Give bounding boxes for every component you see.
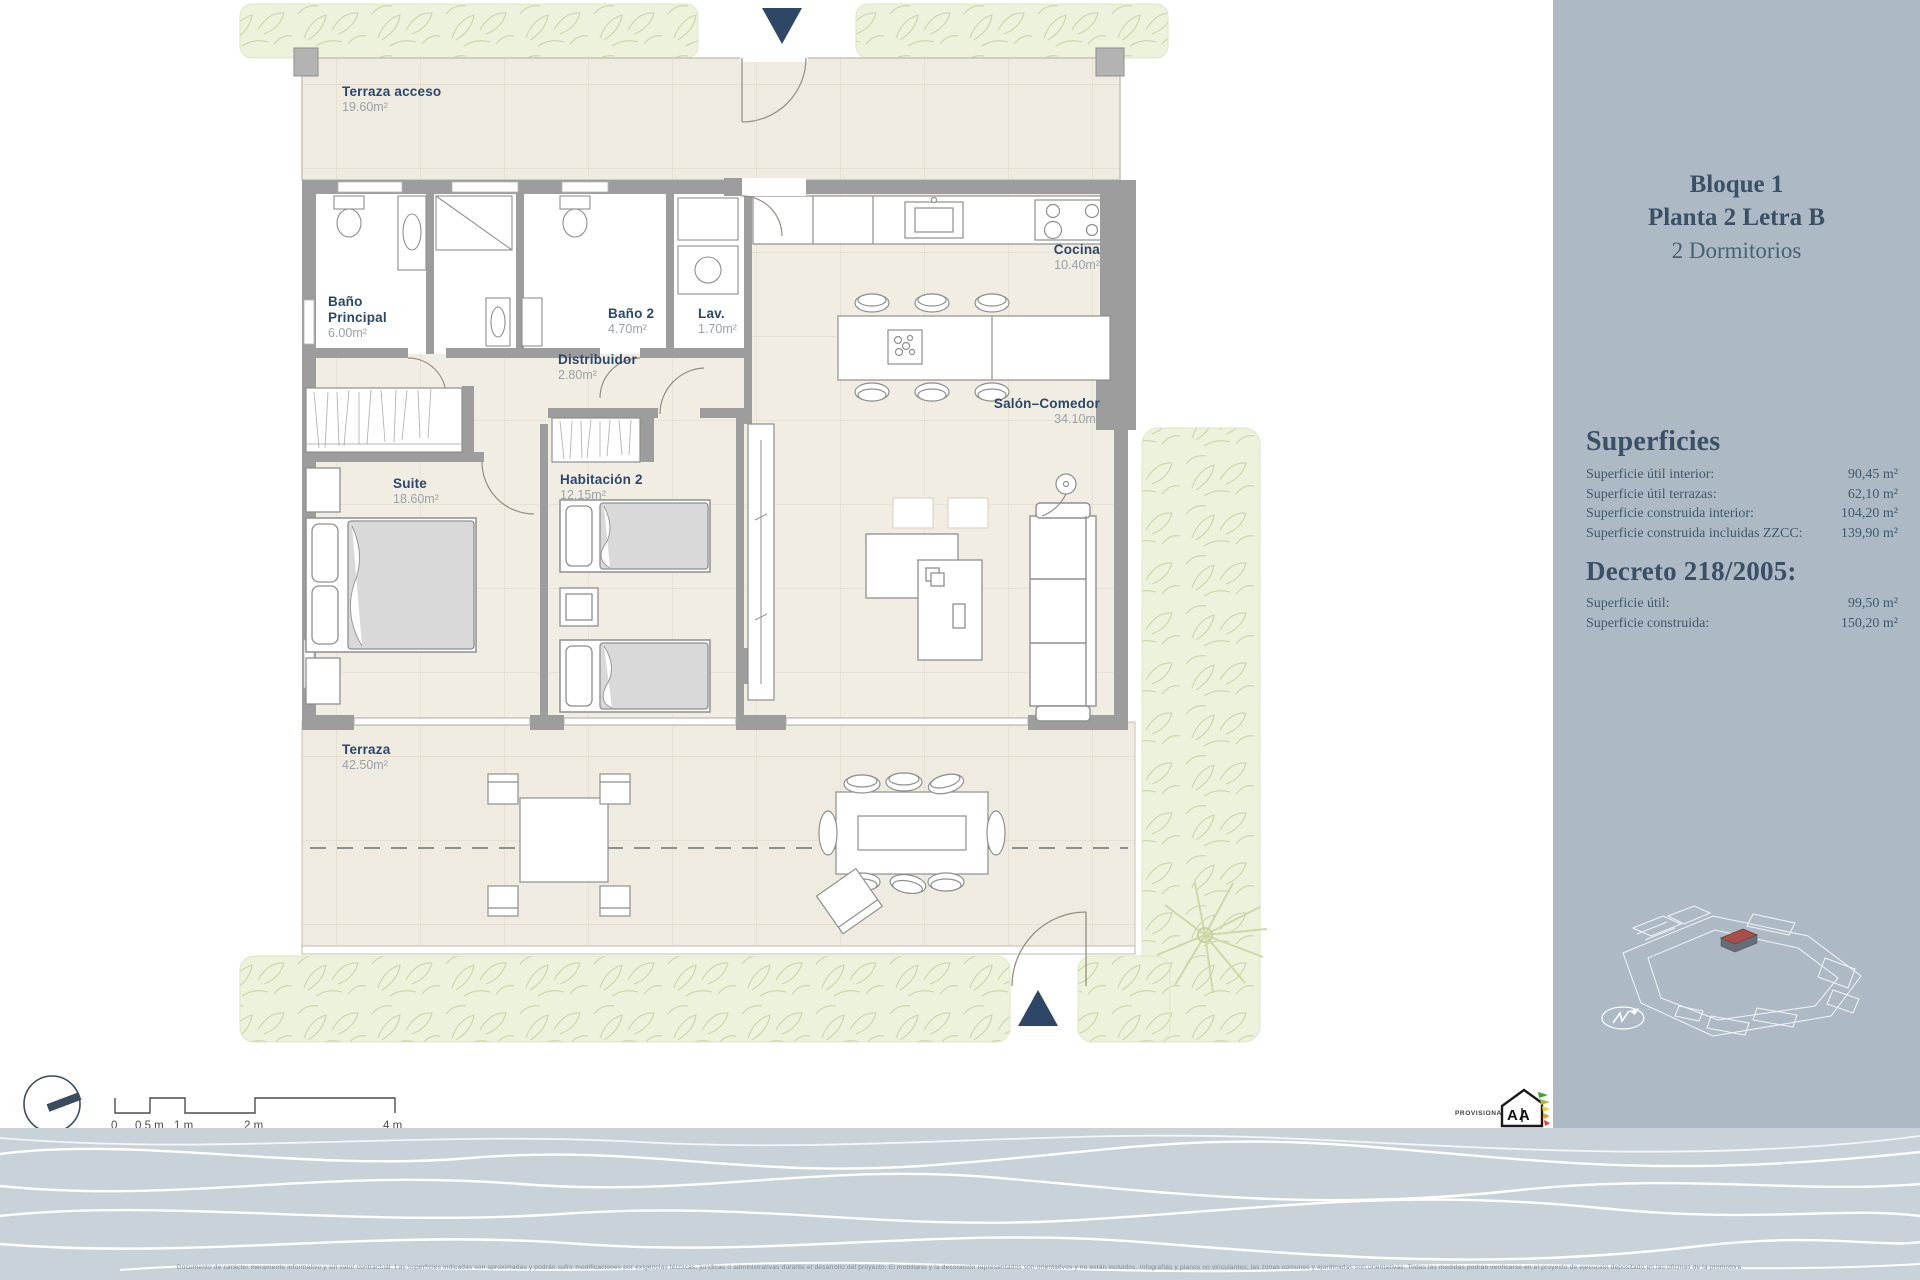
- energy-certificate-icon: AA: [1498, 1086, 1550, 1130]
- surface-value: 104,20 m²: [1841, 504, 1898, 524]
- vanity-icon: [398, 196, 426, 270]
- unit-title: Bloque 1 Planta 2 Letra B 2 Dormitorios: [1553, 168, 1920, 267]
- unit-title-floor-letter: Planta 2 Letra B: [1553, 201, 1920, 234]
- unit-title-bedrooms: 2 Dormitorios: [1553, 234, 1920, 267]
- toilet-icon: [334, 196, 364, 237]
- room-area: 6.00m²: [328, 326, 400, 341]
- sink-icon: [905, 198, 963, 239]
- room-name: Cocina: [1054, 242, 1100, 258]
- island-decor: [888, 330, 922, 364]
- room-name: Distribuidor: [558, 352, 637, 368]
- surface-label: Superficie útil interior:: [1586, 465, 1714, 485]
- room-area: 10.40m²: [1054, 258, 1100, 273]
- site-location-map: [1593, 898, 1893, 1048]
- room-name: Baño 2: [608, 306, 654, 322]
- room-label-cocina: Cocina 10.40m²: [1054, 242, 1100, 273]
- sliding-glass-doors: [354, 718, 1028, 725]
- room-label-terraza: Terraza 42.50m²: [342, 742, 390, 773]
- legal-disclaimer: Documento de carácter meramente informat…: [10, 1264, 1910, 1271]
- room-label-habitacion-2: Habitación 2 12.15m²: [560, 472, 643, 503]
- room-name: Lav.: [698, 306, 737, 322]
- shower-icon: [436, 196, 512, 250]
- room-label-bano-2: Baño 2 4.70m²: [608, 306, 654, 337]
- superficies-heading: Superficies: [1586, 426, 1898, 458]
- vanity-icon: [486, 298, 510, 346]
- vanity-icon: [522, 298, 542, 346]
- room-name: Habitación 2: [560, 472, 643, 488]
- room-area: 18.60m²: [393, 492, 439, 507]
- wave-footer: [0, 1128, 1920, 1280]
- surface-row: Superficie construida: 150,20 m²: [1586, 614, 1898, 634]
- surface-value: 150,20 m²: [1841, 614, 1898, 634]
- surface-label: Superficie construida incluidas ZZCC:: [1586, 524, 1803, 544]
- toilet-icon: [560, 196, 590, 237]
- hob-icon: [1035, 200, 1111, 240]
- room-area: 34.10m²: [994, 412, 1100, 427]
- surface-row: Superficie construida interior: 104,20 m…: [1586, 504, 1898, 524]
- decreto-heading: Decreto 218/2005:: [1586, 556, 1898, 587]
- brochure-page: Terraza acceso 19.60m² Baño Principal 6.…: [0, 0, 1920, 1280]
- terrace-floor: [302, 722, 1135, 954]
- surface-label: Superficie construida:: [1586, 614, 1709, 634]
- room-area: 4.70m²: [608, 322, 654, 337]
- washer-icon: [678, 198, 738, 294]
- scale-bar: [115, 1098, 395, 1113]
- superficies-section: Superficies Superficie útil interior: 90…: [1586, 426, 1898, 543]
- room-area: 1.70m²: [698, 322, 737, 337]
- room-label-salon-comedor: Salón–Comedor 34.10m²: [994, 396, 1100, 427]
- surface-value: 62,10 m²: [1848, 485, 1898, 505]
- room-area: 2.80m²: [558, 368, 637, 383]
- surface-row: Superficie útil interior: 90,45 m²: [1586, 465, 1898, 485]
- kitchen-counter: [753, 196, 1121, 244]
- room-area: 42.50m²: [342, 758, 390, 773]
- svg-text:AA: AA: [1507, 1107, 1531, 1124]
- surface-label: Superficie útil terrazas:: [1586, 485, 1717, 505]
- surface-value: 139,90 m²: [1841, 524, 1898, 544]
- room-area: 12.15m²: [560, 488, 643, 503]
- room-area: 19.60m²: [342, 100, 441, 115]
- room-name: Baño Principal: [328, 294, 400, 326]
- room-label-suite: Suite 18.60m²: [393, 476, 439, 507]
- surface-value: 90,45 m²: [1848, 465, 1898, 485]
- surface-label: Superficie construida interior:: [1586, 504, 1754, 524]
- unit-title-block: Bloque 1: [1553, 168, 1920, 201]
- surface-label: Superficie útil:: [1586, 594, 1670, 614]
- north-indicator-icon: [1602, 1007, 1644, 1029]
- entry-arrow-icon: [762, 8, 802, 44]
- room-name: Terraza acceso: [342, 84, 441, 100]
- info-sidebar: Bloque 1 Planta 2 Letra B 2 Dormitorios …: [1553, 0, 1920, 1128]
- decreto-section: Decreto 218/2005: Superficie útil: 99,50…: [1586, 556, 1898, 633]
- surface-row: Superficie construida incluidas ZZCC: 13…: [1586, 524, 1898, 544]
- room-name: Salón–Comedor: [994, 396, 1100, 412]
- exit-arrow-icon: [1018, 990, 1058, 1026]
- compass-icon: [24, 1076, 80, 1132]
- tv-unit: [748, 424, 774, 700]
- surface-value: 99,50 m²: [1848, 594, 1898, 614]
- sofa-icon: [1030, 503, 1096, 721]
- surface-row: Superficie útil: 99,50 m²: [1586, 594, 1898, 614]
- room-label-terraza-acceso: Terraza acceso 19.60m²: [342, 84, 441, 115]
- room-name: Suite: [393, 476, 439, 492]
- room-label-bano-principal: Baño Principal 6.00m²: [328, 294, 400, 341]
- room-label-distribuidor: Distribuidor 2.80m²: [558, 352, 637, 383]
- room-label-lavadero: Lav. 1.70m²: [698, 306, 737, 337]
- surface-row: Superficie útil terrazas: 62,10 m²: [1586, 485, 1898, 505]
- room-name: Terraza: [342, 742, 390, 758]
- floor-plan-drawing: [0, 0, 1553, 1132]
